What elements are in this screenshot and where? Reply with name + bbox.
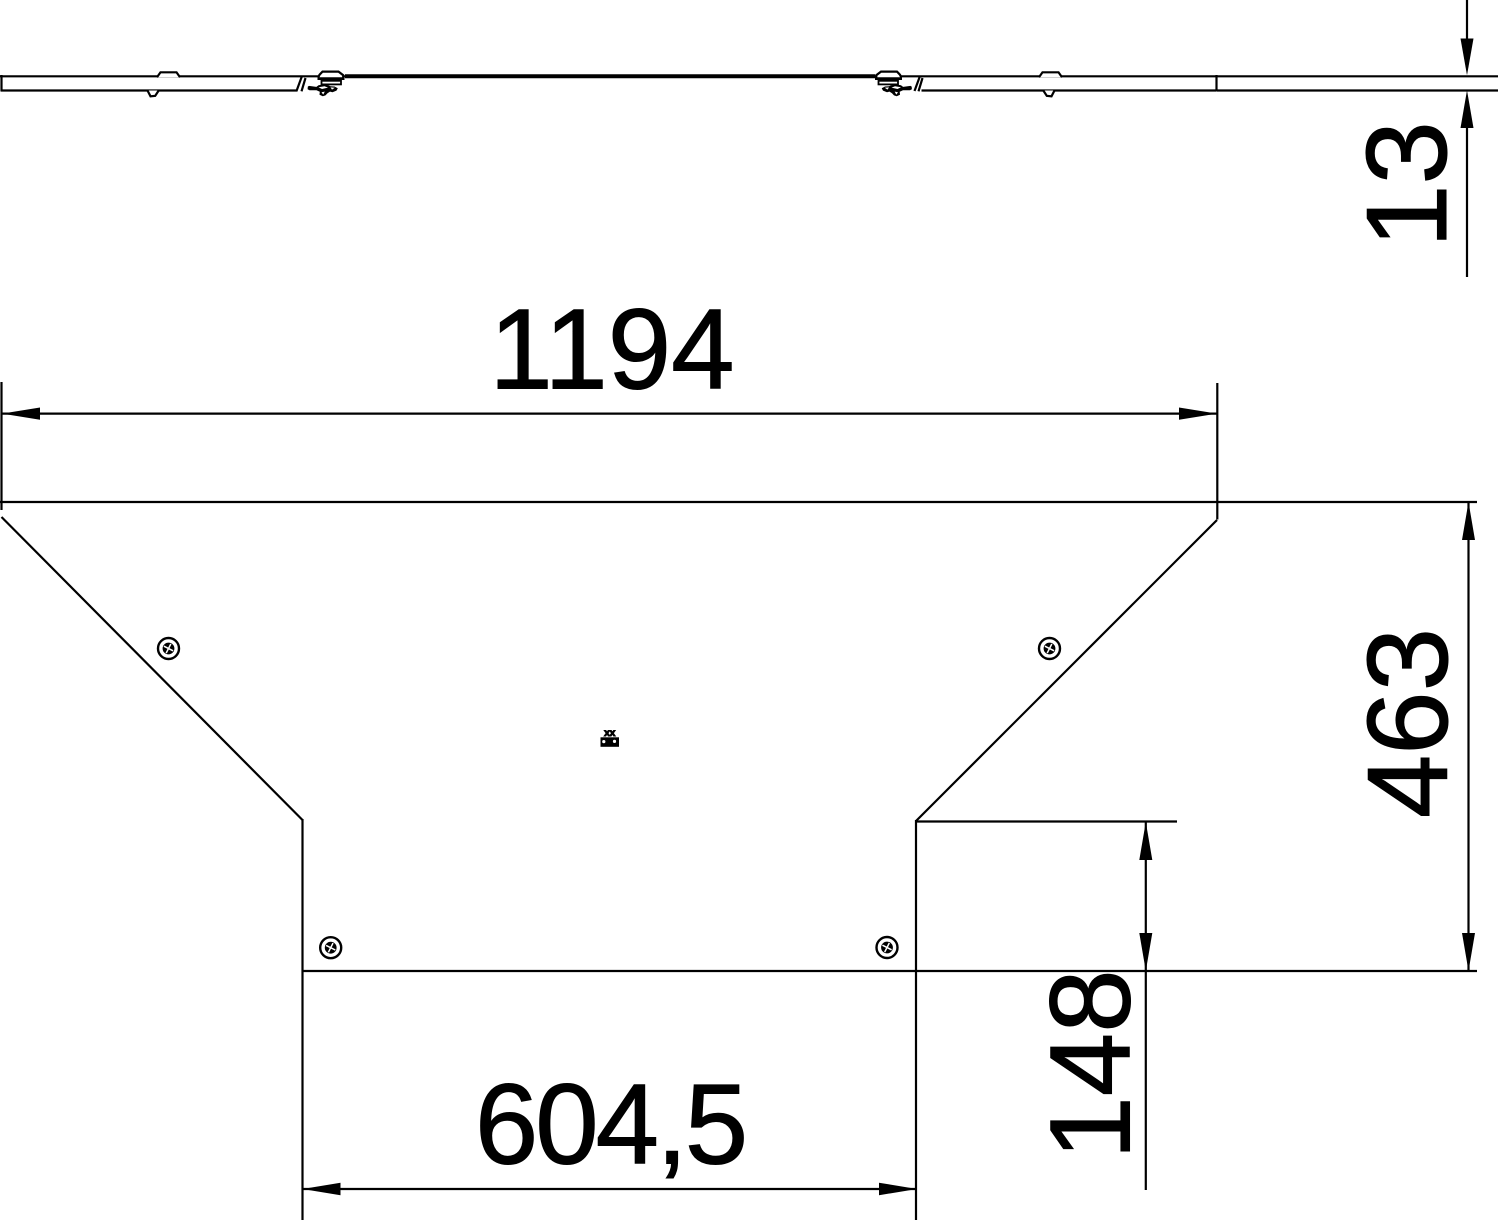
svg-text:13: 13 bbox=[1344, 121, 1471, 248]
svg-text:604,5: 604,5 bbox=[475, 1062, 745, 1189]
svg-text:148: 148 bbox=[1028, 969, 1155, 1159]
svg-text:1194: 1194 bbox=[489, 287, 734, 414]
svg-text:xx: xx bbox=[604, 727, 615, 739]
svg-text:463: 463 bbox=[1345, 628, 1472, 818]
